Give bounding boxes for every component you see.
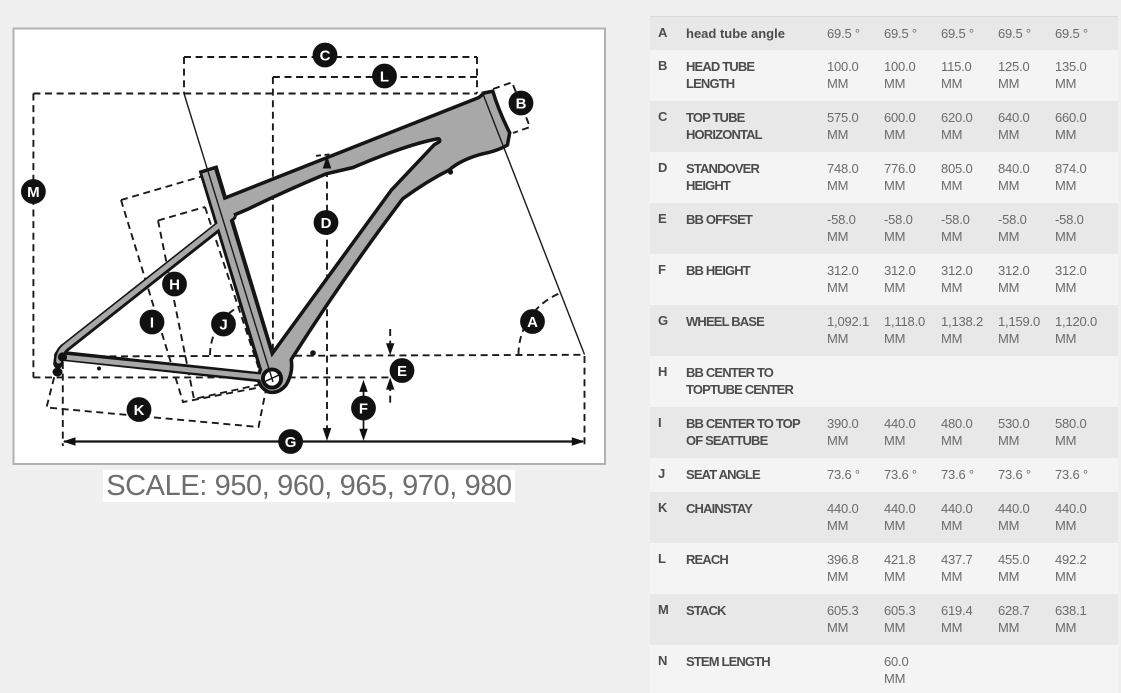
svg-text:L: L <box>380 68 389 85</box>
svg-text:K: K <box>134 402 145 419</box>
svg-text:I: I <box>150 314 154 331</box>
svg-text:H: H <box>169 276 180 293</box>
svg-text:A: A <box>527 314 538 331</box>
svg-text:F: F <box>359 400 368 417</box>
svg-text:G: G <box>285 434 297 451</box>
svg-text:D: D <box>321 215 332 232</box>
svg-text:B: B <box>516 95 527 112</box>
svg-text:E: E <box>397 363 407 380</box>
svg-text:J: J <box>219 316 227 333</box>
svg-text:C: C <box>320 47 331 64</box>
svg-text:M: M <box>27 184 40 201</box>
